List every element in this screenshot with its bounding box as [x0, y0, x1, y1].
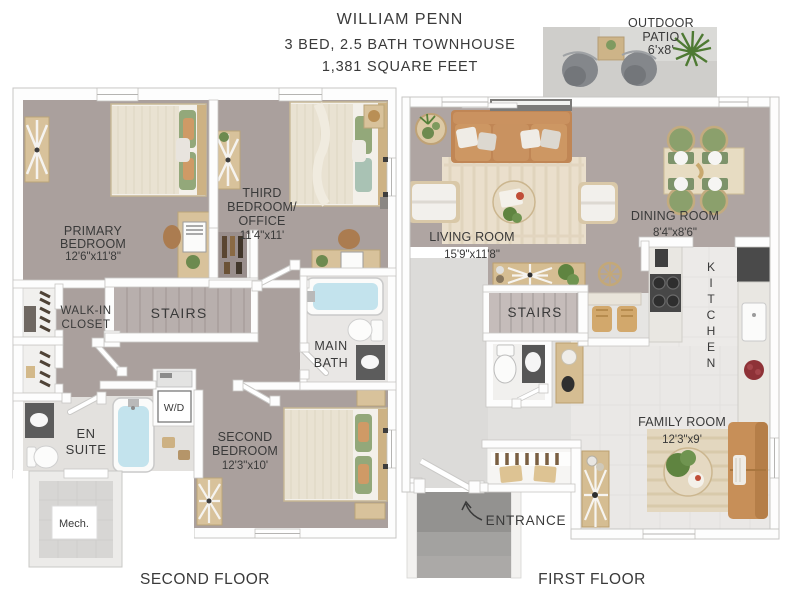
svg-text:C: C: [707, 308, 716, 322]
svg-text:MAIN: MAIN: [314, 339, 347, 353]
svg-text:WILLIAM PENN: WILLIAM PENN: [337, 11, 464, 28]
svg-text:DINING ROOM: DINING ROOM: [631, 209, 719, 223]
svg-text:FAMILY ROOM: FAMILY ROOM: [638, 415, 726, 429]
svg-text:STAIRS: STAIRS: [508, 305, 563, 320]
svg-text:K: K: [707, 260, 715, 274]
svg-text:N: N: [707, 356, 716, 370]
svg-text:E: E: [707, 340, 715, 354]
svg-text:T: T: [707, 292, 715, 306]
svg-text:BATH: BATH: [314, 356, 348, 370]
svg-text:CLOSET: CLOSET: [61, 319, 110, 331]
svg-text:3 BED, 2.5 BATH TOWNHOUSE: 3 BED, 2.5 BATH TOWNHOUSE: [284, 37, 515, 53]
svg-text:11'4"x11': 11'4"x11': [240, 230, 285, 242]
svg-text:12'3"x10': 12'3"x10': [222, 460, 268, 472]
svg-text:WALK-IN: WALK-IN: [61, 305, 112, 317]
svg-text:W/D: W/D: [164, 402, 185, 414]
svg-text:SECOND: SECOND: [218, 430, 273, 444]
svg-text:Mech.: Mech.: [59, 518, 89, 530]
svg-text:EN: EN: [76, 426, 95, 441]
svg-text:LIVING ROOM: LIVING ROOM: [429, 230, 515, 244]
svg-text:STAIRS: STAIRS: [151, 305, 208, 321]
svg-text:OFFICE: OFFICE: [238, 214, 285, 228]
svg-text:BEDROOM: BEDROOM: [60, 237, 126, 251]
svg-text:8'4"x8'6": 8'4"x8'6": [653, 227, 697, 239]
svg-text:1,381 SQUARE FEET: 1,381 SQUARE FEET: [322, 59, 478, 75]
svg-text:SECOND FLOOR: SECOND FLOOR: [140, 571, 270, 588]
svg-text:THIRD: THIRD: [242, 186, 281, 200]
svg-text:H: H: [707, 324, 716, 338]
svg-text:SUITE: SUITE: [66, 442, 107, 457]
svg-text:12'3"x9': 12'3"x9': [662, 434, 702, 446]
svg-text:6'x8': 6'x8': [648, 43, 674, 57]
svg-text:FIRST FLOOR: FIRST FLOOR: [538, 571, 646, 588]
svg-text:I: I: [709, 276, 712, 290]
svg-text:BEDROOM: BEDROOM: [212, 444, 278, 458]
svg-text:PRIMARY: PRIMARY: [64, 224, 123, 238]
svg-text:15'9"x11'8": 15'9"x11'8": [444, 249, 500, 261]
svg-text:OUTDOOR: OUTDOOR: [628, 16, 694, 30]
svg-text:BEDROOM/: BEDROOM/: [227, 200, 297, 214]
svg-text:12'6"x11'8": 12'6"x11'8": [65, 251, 121, 263]
svg-text:PATIO: PATIO: [642, 30, 679, 44]
svg-text:ENTRANCE: ENTRANCE: [486, 513, 567, 528]
